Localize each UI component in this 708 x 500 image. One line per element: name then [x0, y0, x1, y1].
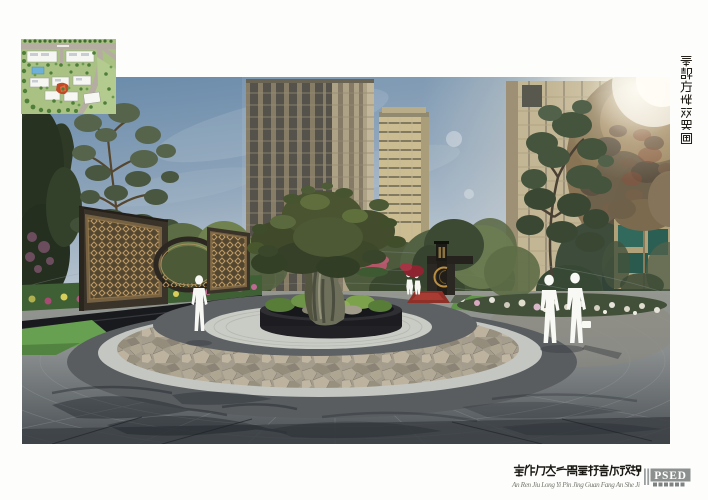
svg-text:PSED: PSED	[654, 470, 687, 482]
svg-text:An Ren Jiu Long Yi Pin Jing Gu: An Ren Jiu Long Yi Pin Jing Guan Fang An…	[511, 481, 640, 489]
